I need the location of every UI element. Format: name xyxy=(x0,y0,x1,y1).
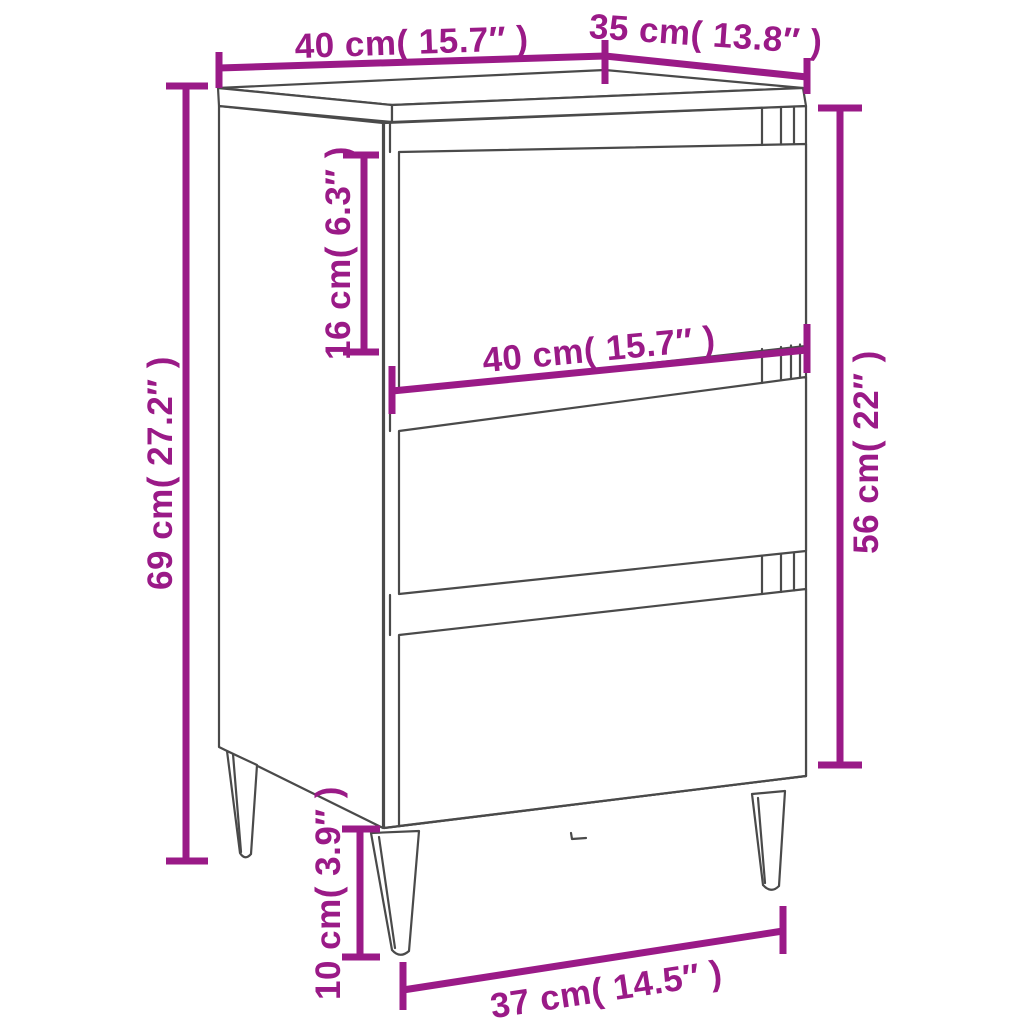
dimension-label-top-width: 40 cm( 15.7″ ) xyxy=(294,19,529,66)
cabinet-left-panel xyxy=(219,106,383,828)
front-right-leg xyxy=(752,791,785,890)
back-left-leg xyxy=(227,751,257,857)
dimension-label-body-height: 56 cm( 22″ ) xyxy=(847,350,886,554)
dimension-leg-span: 37 cm( 14.5″ ) xyxy=(403,906,783,1024)
dimension-label-leg-span: 37 cm( 14.5″ ) xyxy=(488,953,725,1024)
bottom-edge-notch xyxy=(571,833,586,839)
dimension-label-top-depth: 35 cm( 13.8″ ) xyxy=(588,7,824,62)
dimension-label-leg-height: 10 cm( 3.9″ ) xyxy=(309,786,348,1000)
dimension-overall-height: 69 cm( 27.2″ ) xyxy=(141,86,208,861)
dimension-diagram: 40 cm( 15.7″ ) 35 cm( 13.8″ ) 69 cm( 27.… xyxy=(0,0,1024,1024)
dimension-body-height: 56 cm( 22″ ) xyxy=(818,108,886,765)
dimension-label-overall-height: 69 cm( 27.2″ ) xyxy=(141,356,180,590)
dimension-label-top-drawer-height: 16 cm( 6.3″ ) xyxy=(319,146,358,360)
cabinet-drawing xyxy=(218,70,806,955)
front-left-leg xyxy=(371,831,419,955)
diagram-canvas: 40 cm( 15.7″ ) 35 cm( 13.8″ ) 69 cm( 27.… xyxy=(0,0,1024,1024)
